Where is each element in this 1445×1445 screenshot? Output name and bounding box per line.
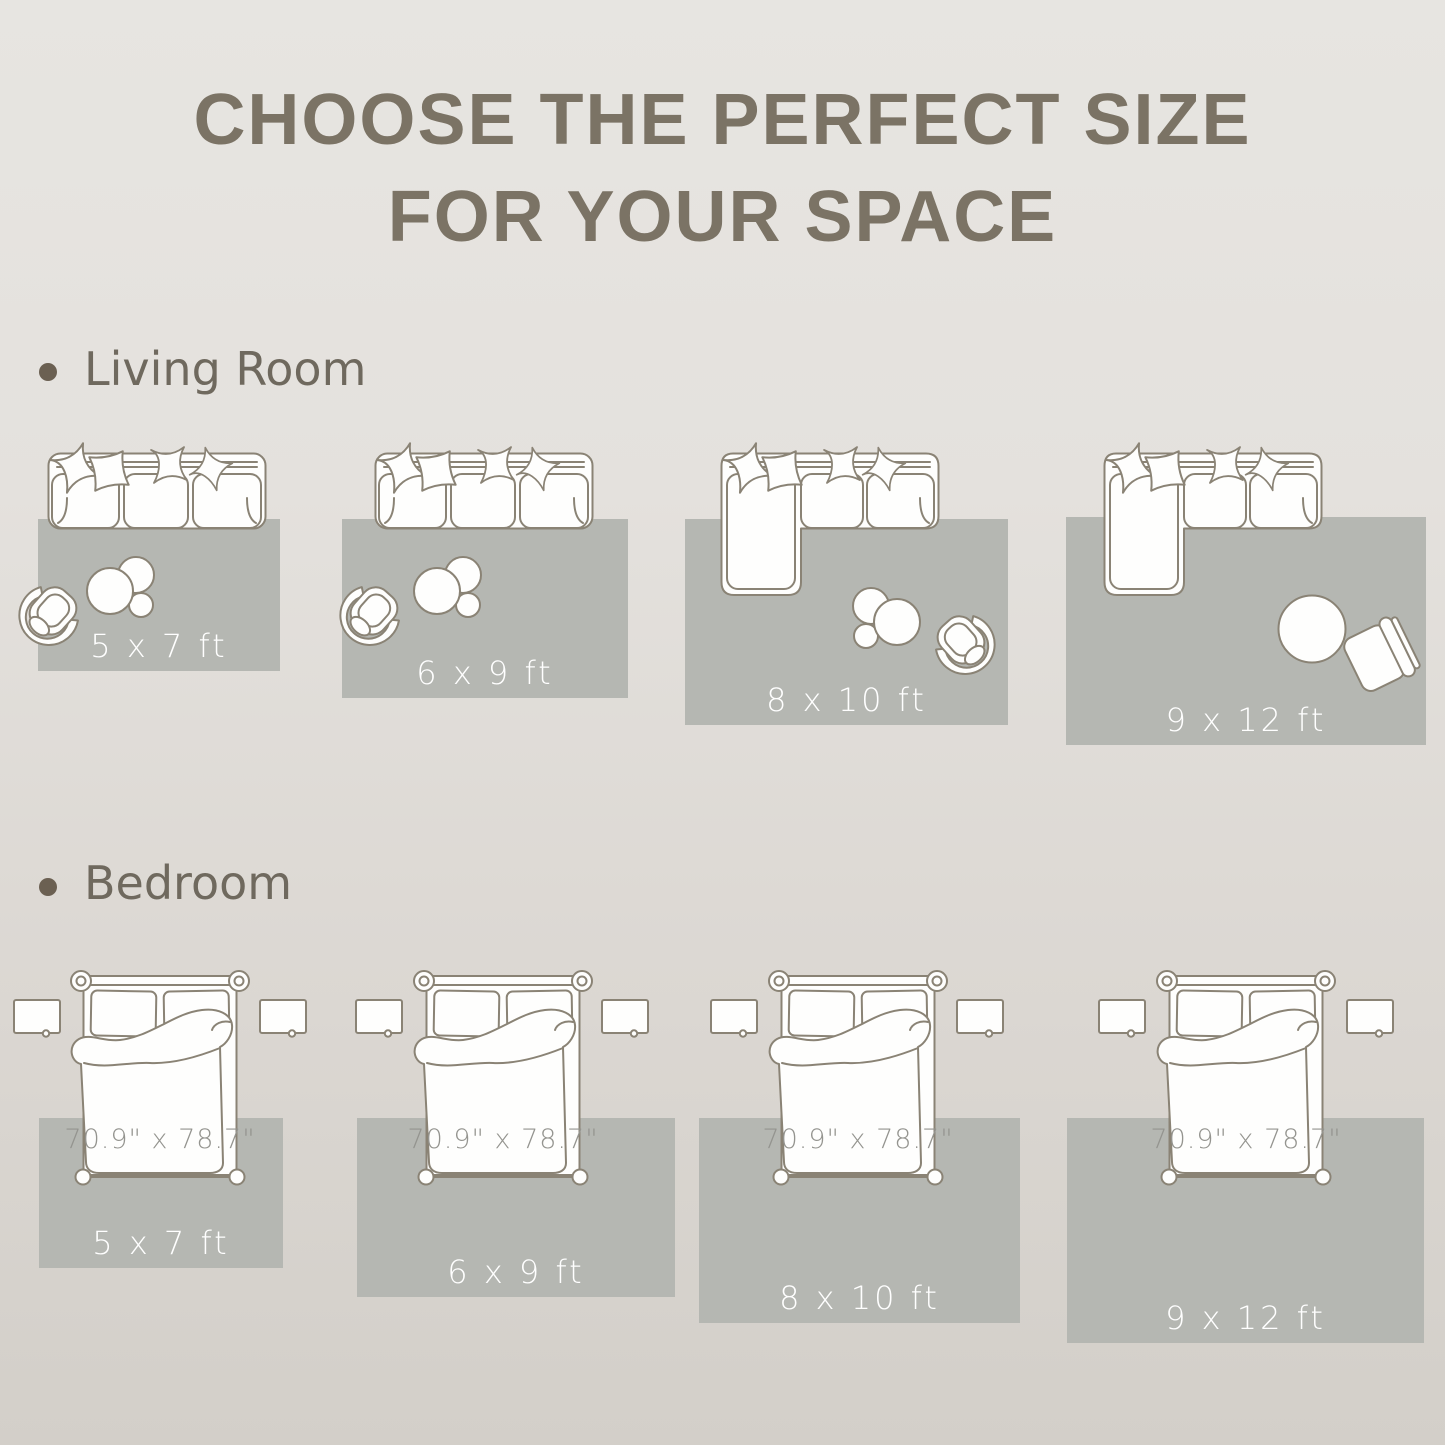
nightstand-icon (1098, 999, 1146, 1039)
nightstand-icon (259, 999, 307, 1039)
sofa-icon (374, 452, 594, 532)
page-title: CHOOSE THE PERFECT SIZE FOR YOUR SPACE (0, 72, 1445, 266)
bed-icon (768, 970, 948, 1188)
rug-size-label: 8 x 10 ft (699, 1279, 1020, 1317)
page-title-line-1: CHOOSE THE PERFECT SIZE (0, 72, 1445, 169)
rug-size-label: 6 x 9 ft (342, 654, 628, 692)
rug-size-label: 9 x 12 ft (1067, 1299, 1424, 1337)
section-label-living-room: Living Room (84, 344, 366, 395)
nightstand-icon (956, 999, 1004, 1039)
page-title-line-2: FOR YOUR SPACE (0, 169, 1445, 266)
bed-icon (413, 970, 593, 1188)
coffee-table-icon (845, 584, 923, 654)
living-room-bullet-icon (39, 363, 57, 381)
bedroom-bullet-icon (39, 878, 57, 896)
nightstand-icon (13, 999, 61, 1039)
bed-size-label: 70.9" x 78.7" (1146, 1124, 1346, 1155)
nightstand-icon (710, 999, 758, 1039)
bed-size-label: 70.9" x 78.7" (60, 1124, 260, 1155)
bed-size-label: 70.9" x 78.7" (758, 1124, 958, 1155)
coffee-table-icon (411, 553, 489, 623)
sectional-sofa-icon (1103, 452, 1323, 597)
nightstand-icon (355, 999, 403, 1039)
sofa-icon (47, 452, 267, 532)
rug-size-label: 5 x 7 ft (39, 1224, 283, 1262)
nightstand-icon (1346, 999, 1394, 1039)
nightstand-icon (601, 999, 649, 1039)
round-table-icon (1277, 594, 1347, 664)
bed-icon (1156, 970, 1336, 1188)
bed-icon (70, 970, 250, 1188)
section-label-bedroom: Bedroom (84, 858, 292, 909)
rug-size-label: 6 x 9 ft (357, 1253, 675, 1291)
rug-size-label: 9 x 12 ft (1066, 701, 1426, 739)
bed-size-label: 70.9" x 78.7" (403, 1124, 603, 1155)
rug-size-infographic: { "title": { "line1": "CHOOSE THE PERFEC… (0, 0, 1445, 1445)
sectional-sofa-icon (720, 452, 940, 597)
